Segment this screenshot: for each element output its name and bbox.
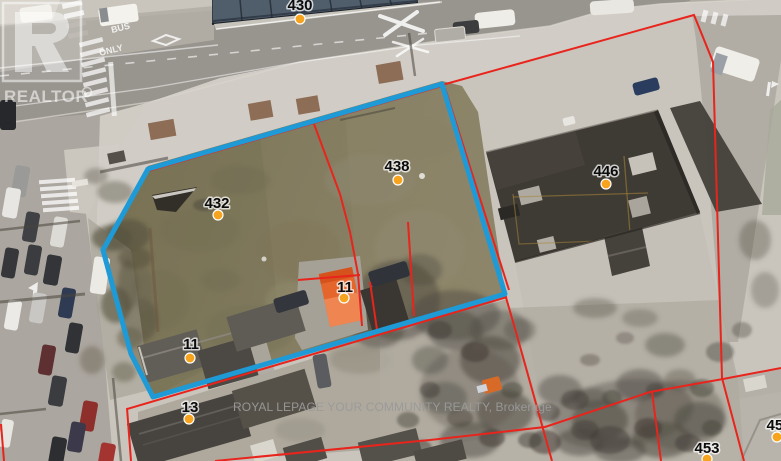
svg-text:REALTOR: REALTOR — [4, 87, 88, 106]
svg-text:ROYAL LEPAGE YOUR COMMUNITY RE: ROYAL LEPAGE YOUR COMMUNITY REALTY, Brok… — [233, 400, 552, 414]
svg-text:432: 432 — [204, 195, 229, 212]
svg-text:446: 446 — [593, 163, 618, 180]
svg-text:455: 455 — [766, 417, 781, 434]
svg-text:430: 430 — [287, 0, 312, 14]
svg-text:11: 11 — [183, 336, 199, 353]
svg-text:438: 438 — [384, 158, 409, 175]
svg-text:13: 13 — [182, 399, 199, 416]
